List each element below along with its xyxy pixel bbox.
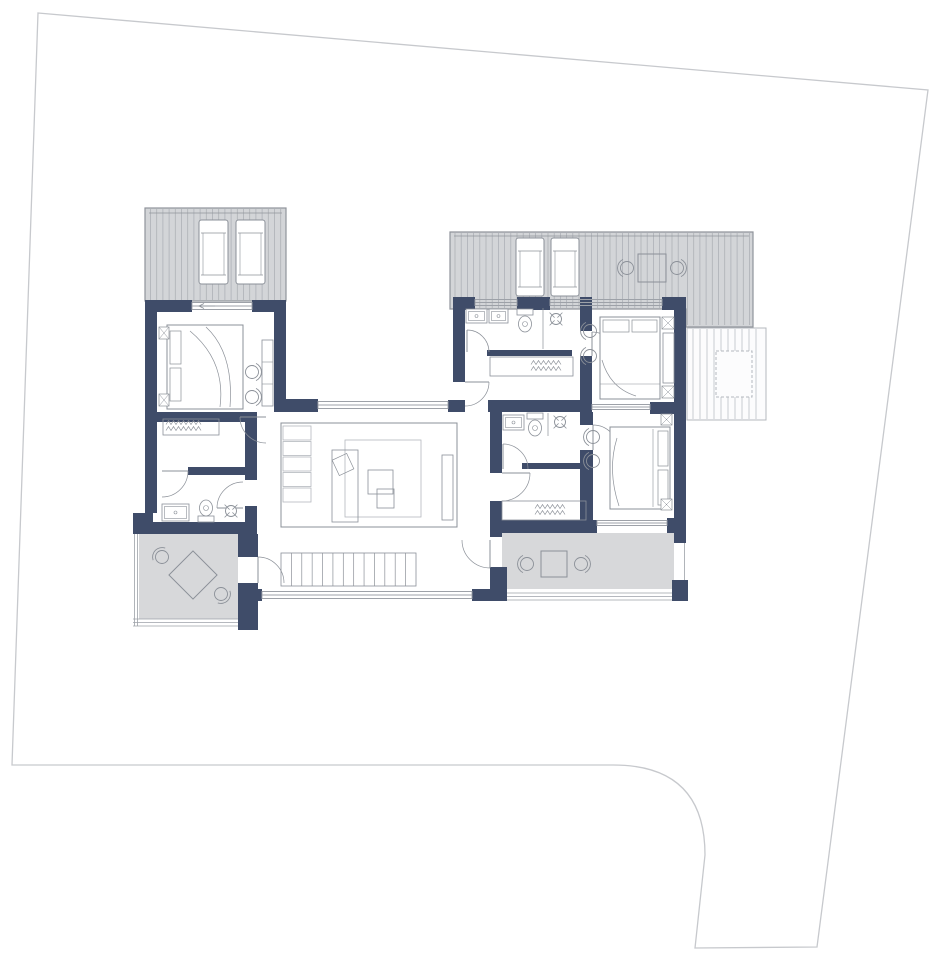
floor-plan-drawing <box>0 0 941 960</box>
clothes-rail-icon <box>531 361 561 371</box>
floor-plan-page <box>0 0 941 960</box>
clothes-rail-icon <box>535 505 565 515</box>
living-room-void <box>281 423 457 527</box>
bed-icon <box>610 427 670 509</box>
rug <box>345 440 421 517</box>
bathroom-3 <box>503 413 566 436</box>
bedroom-3 <box>584 414 672 510</box>
door-swing-icon <box>467 330 489 352</box>
entry-arrow-icon <box>199 304 215 309</box>
door-swing-icon <box>465 382 489 406</box>
balcony-right <box>502 533 688 600</box>
void-outline <box>281 423 457 527</box>
table-icon <box>541 551 567 577</box>
bedroom-2 <box>581 317 674 399</box>
stairs-icon <box>281 553 416 586</box>
bed-icon <box>600 317 660 399</box>
coffee-table-icon <box>368 470 393 494</box>
door-swing-icon <box>258 557 284 583</box>
bathroom-2 <box>466 308 562 349</box>
closet-3 <box>502 501 586 520</box>
cabinet-icon <box>283 442 311 456</box>
cabinet-icon <box>283 457 311 471</box>
bed-icon <box>167 325 243 409</box>
bedroom-1 <box>159 325 273 409</box>
cabinet-icon <box>283 488 311 502</box>
tv-console-icon <box>442 455 453 520</box>
staircase-main <box>281 553 416 586</box>
bathroom-1 <box>162 500 237 522</box>
door-swing-icon <box>462 540 490 568</box>
wardrobe-icon <box>663 333 674 383</box>
door-swing-icon <box>217 482 243 508</box>
cabinet-icon <box>283 473 311 487</box>
balcony-left <box>133 534 240 626</box>
exterior-staircase <box>687 328 766 420</box>
roof-terrace-left <box>145 208 286 301</box>
door-swing-icon <box>502 473 530 501</box>
closet-2 <box>490 357 573 376</box>
cabinet-icon <box>283 426 311 440</box>
coffee-table-icon <box>377 489 394 508</box>
door-swing-icon <box>162 471 188 497</box>
wardrobe-icon <box>262 340 273 406</box>
